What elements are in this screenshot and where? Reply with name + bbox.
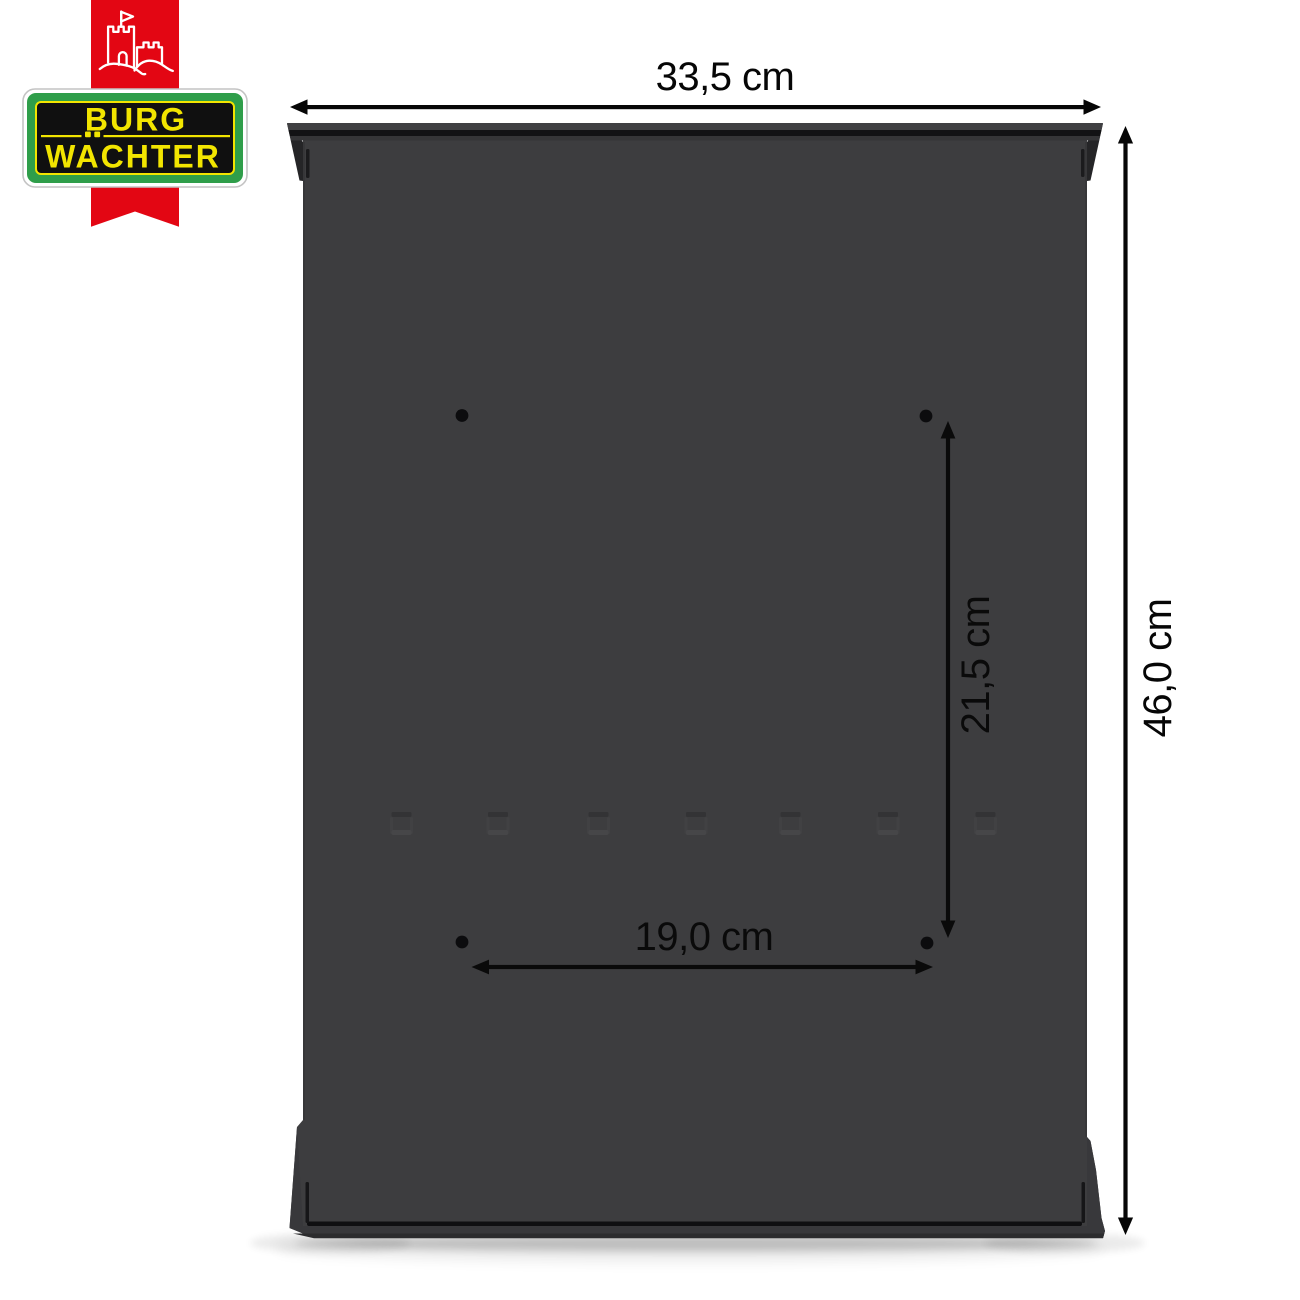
svg-text:33,5 cm: 33,5 cm [656, 55, 795, 99]
svg-text:46,0 cm: 46,0 cm [1136, 599, 1180, 738]
svg-text:BURG: BURG [85, 102, 187, 138]
svg-text:19,0 cm: 19,0 cm [635, 915, 774, 959]
svg-text:WACHTER: WACHTER [45, 139, 221, 175]
svg-text:21,5 cm: 21,5 cm [954, 596, 998, 735]
